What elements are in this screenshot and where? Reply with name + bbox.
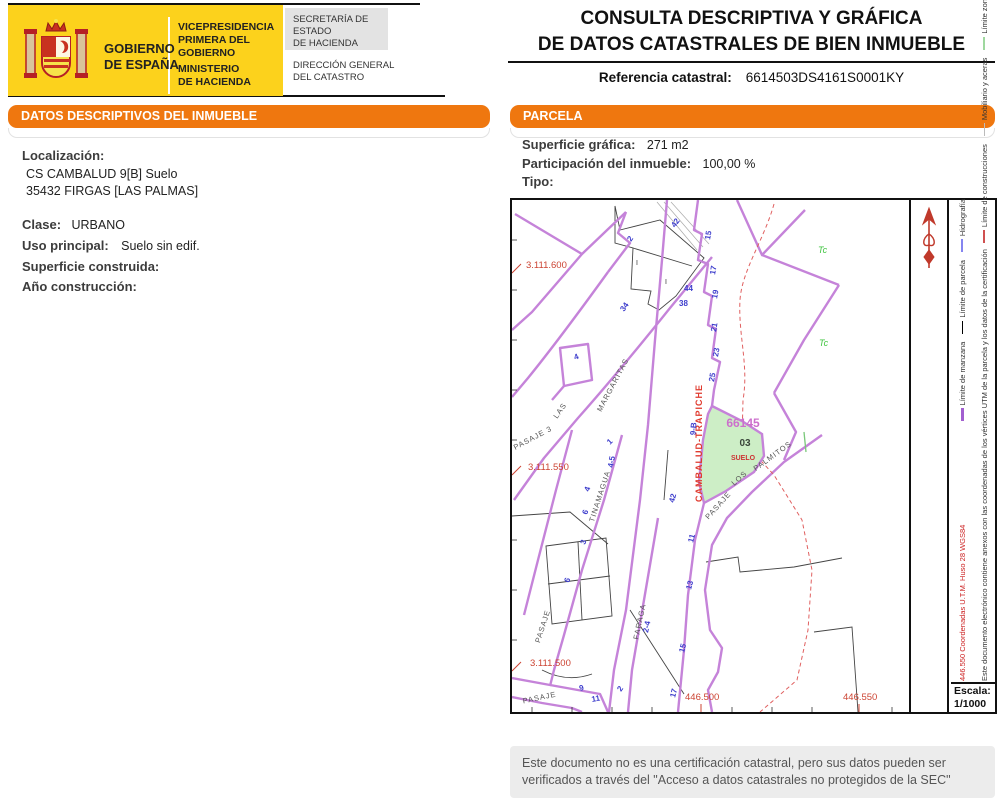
house-number: 13 (684, 579, 695, 590)
document-title-line2: DE DATOS CATASTRALES DE BIEN INMUEBLE (508, 34, 995, 56)
house-number: 9 (578, 683, 585, 693)
uso-row: Uso principal: Suelo sin edif. (22, 237, 200, 255)
north-strip (909, 200, 949, 712)
cadastral-reference-value: 6614503DS4161S0001KY (746, 70, 904, 85)
hidrografia-swatch-icon (961, 239, 963, 252)
gobierno-espana-label: GOBIERNO DE ESPAÑA (104, 41, 179, 73)
clase-row: Clase: URBANO (22, 216, 125, 234)
construction-mark-2: I (665, 279, 667, 286)
construction-mark-1: I (636, 260, 638, 267)
panel-datos-lip (8, 128, 490, 138)
uso-label: Uso principal: (22, 238, 109, 253)
parcel-local-number: 03 (739, 438, 751, 449)
superficie-grafica-row: Superficie gráfica: 271 m2 (522, 136, 689, 154)
scale-box: Escala: 1/1000 (951, 682, 995, 712)
house-number: 2 (615, 684, 625, 693)
superficie-grafica-value: 271 m2 (647, 138, 689, 152)
house-number: 6 (562, 576, 572, 584)
coord-label-x1: 446.500 (685, 692, 719, 703)
anio-construccion-row: Año construcción: (22, 278, 145, 296)
legend-row-2: Este documento electrónico contiene anex… (980, 199, 989, 681)
map-canvas: 3.111.600 3.111.550 3.111.500 446.500 44… (512, 200, 909, 712)
cadastral-map: 3.111.600 3.111.550 3.111.500 446.500 44… (510, 198, 997, 714)
street-label-cambalud-trapiche: CAMBALUD-TRAPICHE (694, 384, 704, 502)
street-label-pasaje-west: PASAJE (533, 609, 552, 644)
ministerio-label: MINISTERIO DE HACIENDA (178, 63, 251, 89)
house-number: 1 (605, 437, 615, 447)
parcela-swatch-icon (962, 321, 963, 334)
house-number: 3 (578, 538, 588, 546)
panel-datos-header: DATOS DESCRIPTIVOS DEL INMUEBLE (8, 105, 490, 128)
street-label-pasaje3: PASAJE 3 (512, 424, 554, 452)
cadastral-reference-label: Referencia catastral: (599, 70, 732, 85)
participacion-value: 100,00 % (703, 157, 756, 171)
zona-verde-swatch-icon (983, 37, 985, 50)
house-number: 2-4 (641, 620, 652, 634)
legend-item-construcciones: Límite de construcciones (980, 144, 989, 243)
title-rule (508, 61, 995, 63)
house-number: 17 (708, 264, 719, 275)
house-number: 17 (668, 687, 679, 698)
tc-label-2: Tc (819, 338, 829, 348)
legend-item-zona-verde: Límite zona verde (980, 0, 989, 50)
electronic-document-note: Este documento electrónico contiene anex… (980, 249, 989, 681)
superficie-grafica-label: Superficie gráfica: (522, 137, 635, 152)
superficie-construida-row: Superficie construida: (22, 258, 167, 276)
construcciones-swatch-icon (983, 230, 985, 243)
manzana-swatch-icon (961, 408, 964, 421)
localizacion-label: Localización: (22, 148, 104, 163)
street-label-las: LAS (551, 401, 568, 420)
house-number: 4 (582, 485, 592, 493)
parcel-street-number: 9-B (688, 422, 698, 436)
coord-label-x2: 446.550 (843, 692, 877, 703)
parcel-uso-label: SUELO (731, 455, 756, 462)
legend-item-manzana: Límite de manzana (958, 342, 967, 422)
house-number: 34 (618, 300, 631, 313)
document-title-line1: CONSULTA DESCRIPTIVA Y GRÁFICA (508, 8, 995, 30)
clase-label: Clase: (22, 217, 61, 232)
legend-item-mobiliario: Mobiliario y aceras (980, 58, 989, 137)
coord-label-y1: 3.111.600 (526, 260, 567, 271)
legend-strip: 446.550 Coordenadas U.T.M. Huso 28 WGS84… (951, 200, 995, 682)
vicepresidencia-label: VICEPRESIDENCIA PRIMERA DEL GOBIERNO (178, 21, 283, 60)
utm-note: 446.550 Coordenadas U.T.M. Huso 28 WGS84 (958, 525, 967, 681)
superficie-construida-label: Superficie construida: (22, 259, 159, 274)
localizacion-line2: 35432 FIRGAS [LAS PALMAS] (26, 184, 198, 198)
scale-label: Escala: (954, 685, 995, 698)
coord-label-y3: 3.111.500 (530, 658, 571, 669)
coat-of-arms-icon (20, 15, 92, 87)
mobiliario-swatch-icon (984, 123, 985, 136)
house-number: 25 (707, 371, 718, 382)
house-number: 4 (573, 352, 581, 362)
house-number: 23 (711, 346, 722, 357)
house-number: 19 (710, 288, 721, 299)
uso-value: Suelo sin edif. (121, 239, 200, 253)
participacion-row: Participación del inmueble: 100,00 % (522, 155, 755, 173)
legend-item-parcela: Límite de parcela (958, 260, 967, 334)
panel-parcela-header: PARCELA (510, 105, 995, 128)
certification-disclaimer: Este documento no es una certificación c… (510, 746, 995, 798)
participacion-label: Participación del inmueble: (522, 156, 691, 171)
legend-item-hidrografia: Hidrografía (958, 199, 967, 252)
direccion-general-label: DIRECCIÓN GENERAL DEL CATASTRO (293, 60, 394, 84)
localizacion-line1: CS CAMBALUD 9[B] Suelo (26, 167, 177, 181)
clase-value: URBANO (71, 218, 124, 232)
house-number: 38 (679, 299, 688, 308)
manzana-boundaries (512, 200, 839, 712)
house-number: 44 (684, 284, 693, 293)
legend-row-1: 446.550 Coordenadas U.T.M. Huso 28 WGS84… (958, 199, 967, 681)
house-number: 15 (677, 642, 688, 653)
coord-label-y2: 3.111.550 (528, 462, 569, 473)
north-arrow-icon (911, 206, 947, 276)
tipo-label: Tipo: (522, 174, 554, 189)
house-number: 42 (667, 492, 678, 503)
legend-rotated-block: 446.550 Coordenadas U.T.M. Huso 28 WGS84… (951, 199, 995, 681)
house-number: 6 (580, 508, 590, 516)
government-logo: GOBIERNO DE ESPAÑA VICEPRESIDENCIA PRIME… (8, 5, 283, 96)
house-number: 4-5 (606, 455, 617, 468)
cadastral-reference: Referencia catastral:6614503DS4161S0001K… (508, 70, 995, 85)
tc-label-1: Tc (818, 245, 828, 255)
house-number: 15 (703, 229, 714, 240)
secretaria-estado-label: SECRETARÍA DE ESTADO DE HACIENDA (285, 8, 388, 50)
anio-construccion-label: Año construcción: (22, 279, 137, 294)
scale-value: 1/1000 (954, 698, 995, 711)
tipo-row: Tipo: (522, 173, 561, 191)
house-number: 42 (669, 216, 682, 229)
house-number: 21 (709, 321, 720, 332)
manzana-number: 66145 (726, 416, 760, 430)
street-label-margaritas: MARGARITAS (595, 357, 631, 413)
